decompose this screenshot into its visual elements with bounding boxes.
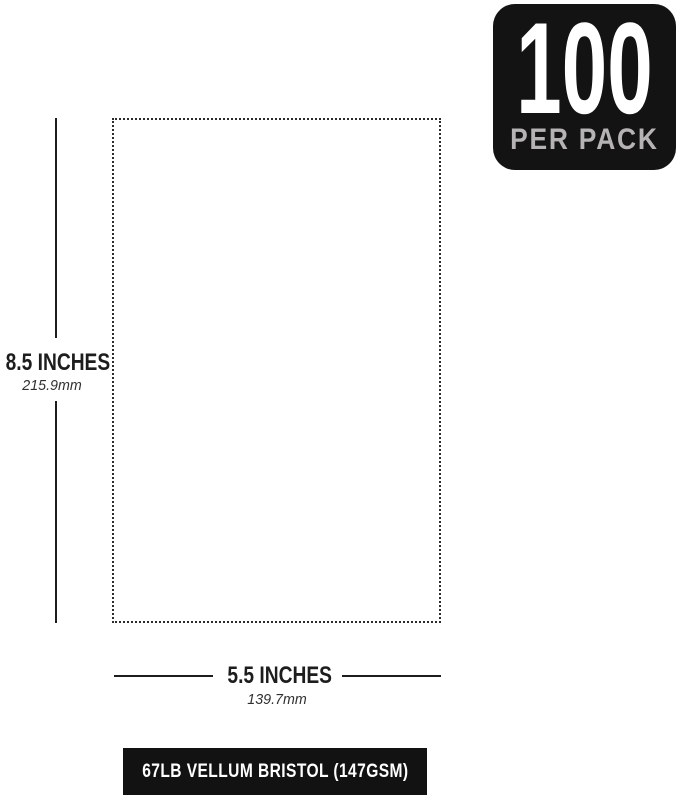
height-dimension-line-top: [55, 118, 57, 338]
width-inches-label: 5.5 INCHES: [227, 663, 326, 689]
paper-type-label: 67LB VELLUM BRISTOL (147GSM): [142, 761, 408, 783]
height-mm-label: 215.9mm: [0, 377, 107, 394]
product-spec-image: 100 PER PACK 8.5 INCHES 215.9mm 5.5 INCH…: [0, 0, 679, 801]
pack-count: 100: [516, 20, 653, 116]
height-inches-label: 8.5 INCHES: [6, 350, 99, 376]
paper-type-bar: 67LB VELLUM BRISTOL (147GSM): [123, 748, 427, 795]
width-dimension-line-left: [114, 675, 213, 677]
width-mm-label: 139.7mm: [218, 691, 336, 708]
height-dimension-line-bottom: [55, 401, 57, 623]
pack-count-label: PER PACK: [510, 125, 659, 155]
width-dimension-line-right: [342, 675, 441, 677]
paper-outline: [112, 118, 441, 623]
pack-count-badge: 100 PER PACK: [493, 4, 676, 170]
